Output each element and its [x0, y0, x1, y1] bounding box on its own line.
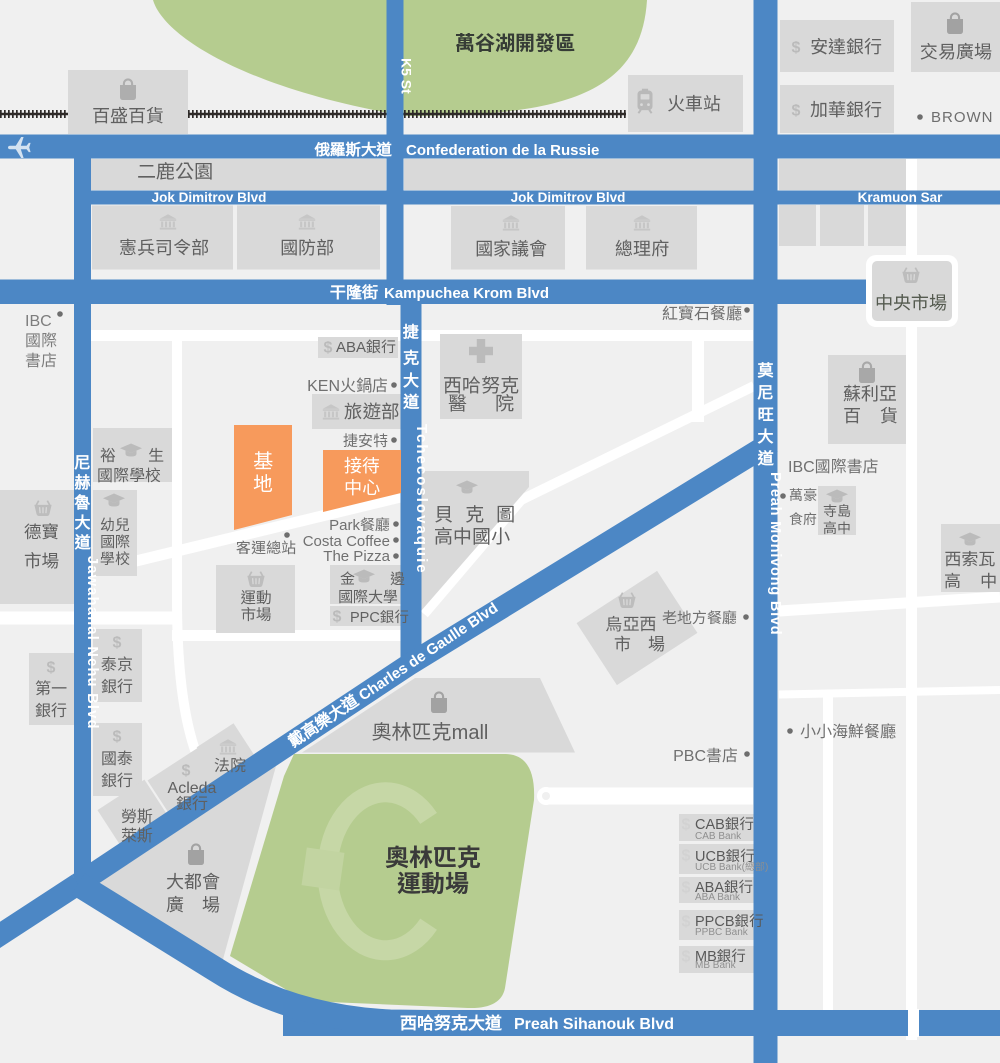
svg-text:魯: 魯 [74, 493, 91, 512]
svg-text:銀行: 銀行 [35, 702, 67, 720]
svg-text:寺島: 寺島 [823, 503, 851, 519]
svg-text:大: 大 [403, 371, 419, 390]
svg-text:市場: 市場 [240, 606, 271, 624]
svg-text:老地方餐廳: 老地方餐廳 [662, 609, 737, 627]
svg-text:勞斯: 勞斯 [121, 808, 153, 826]
svg-text:Preah Monivong Blvd: Preah Monivong Blvd [767, 472, 783, 635]
svg-text:Confederation de la Russie: Confederation de la Russie [406, 142, 599, 159]
svg-text:加華銀行: 加華銀行 [810, 100, 882, 120]
svg-text:百: 百 [843, 406, 861, 426]
svg-text:莫: 莫 [756, 361, 773, 380]
svg-text:總理府: 總理府 [615, 239, 669, 259]
svg-text:俄羅斯大道: 俄羅斯大道 [313, 141, 392, 159]
svg-text:高中國小: 高中國小 [434, 526, 510, 548]
svg-text:紅寶石餐廳: 紅寶石餐廳 [662, 304, 742, 323]
svg-text:蘇利亞: 蘇利亞 [843, 384, 897, 404]
svg-text:旅遊部: 旅遊部 [344, 401, 400, 422]
svg-text:小小海鮮餐廳: 小小海鮮餐廳 [800, 723, 896, 741]
svg-text:克: 克 [402, 349, 419, 368]
svg-text:運動: 運動 [240, 590, 271, 607]
svg-text:萬谷湖開發區: 萬谷湖開發區 [455, 33, 575, 55]
svg-text:PPBC Bank: PPBC Bank [695, 927, 749, 938]
svg-text:接待: 接待 [344, 456, 380, 476]
svg-text:國際: 國際 [25, 332, 57, 350]
svg-text:道: 道 [757, 450, 774, 468]
svg-text:ABA銀行: ABA銀行 [336, 339, 396, 356]
svg-text:尼: 尼 [756, 384, 773, 402]
svg-text:安達銀行: 安達銀行 [810, 37, 882, 57]
svg-text:烏亞西: 烏亞西 [606, 615, 657, 634]
svg-text:泰京: 泰京 [101, 655, 133, 674]
svg-text:Preah Sihanouk Blvd: Preah Sihanouk Blvd [514, 1016, 674, 1033]
svg-text:Jok Dimitrov Blvd: Jok Dimitrov Blvd [152, 190, 267, 205]
svg-text:國際學校: 國際學校 [97, 466, 161, 485]
svg-text:憲兵司令部: 憲兵司令部 [119, 238, 209, 258]
svg-text:市場: 市場 [24, 551, 59, 571]
svg-text:萬豪: 萬豪 [789, 487, 817, 503]
svg-text:基: 基 [253, 451, 273, 473]
svg-text:奧林匹克: 奧林匹克 [385, 845, 481, 872]
svg-text:西哈努克大道: 西哈努克大道 [400, 1014, 503, 1033]
svg-text:邊: 邊 [390, 571, 405, 588]
svg-text:書店: 書店 [25, 352, 57, 370]
svg-text:高中: 高中 [823, 520, 851, 536]
svg-text:廣: 廣 [166, 895, 184, 915]
svg-text:法院: 法院 [214, 757, 246, 775]
svg-text:銀行: 銀行 [101, 772, 133, 790]
svg-text:ABA Bank: ABA Bank [695, 892, 741, 903]
svg-text:MB Bank: MB Bank [695, 960, 737, 971]
svg-text:貨: 貨 [880, 406, 898, 426]
svg-text:Acleda: Acleda [168, 780, 217, 797]
svg-text:德寶: 德寶 [24, 522, 59, 542]
svg-text:IBC: IBC [25, 313, 52, 330]
svg-text:國泰: 國泰 [101, 749, 133, 768]
svg-text:幼兒: 幼兒 [100, 517, 130, 534]
svg-text:西索瓦: 西索瓦 [945, 550, 996, 569]
svg-text:IBC國際書店: IBC國際書店 [788, 458, 879, 476]
svg-text:國際: 國際 [100, 534, 130, 551]
svg-text:場: 場 [648, 635, 665, 654]
svg-text:第一: 第一 [35, 680, 67, 698]
svg-text:運動場: 運動場 [397, 871, 469, 898]
svg-text:Jok Dimitrov Blvd: Jok Dimitrov Blvd [511, 190, 626, 205]
svg-text:食府: 食府 [789, 511, 817, 527]
svg-text:百盛百貨: 百盛百貨 [92, 106, 164, 126]
svg-text:院: 院 [495, 394, 514, 415]
svg-text:中心: 中心 [344, 478, 380, 498]
svg-text:中央市場: 中央市場 [875, 293, 947, 313]
svg-text:二鹿公園: 二鹿公園 [137, 162, 213, 183]
svg-text:捷: 捷 [403, 323, 419, 342]
svg-text:Kramuon Sar: Kramuon Sar [858, 190, 944, 205]
svg-text:尼: 尼 [73, 454, 90, 472]
svg-text:K5 St: K5 St [399, 58, 415, 94]
svg-text:地: 地 [253, 474, 273, 496]
svg-text:場: 場 [202, 895, 220, 915]
svg-text:道: 道 [403, 394, 420, 412]
svg-text:銀行: 銀行 [176, 795, 208, 813]
svg-text:貝克圖: 貝克圖 [434, 505, 527, 526]
svg-text:Tchecoslovaquie: Tchecoslovaquie [413, 424, 430, 575]
svg-text:干隆街: 干隆街 [330, 283, 378, 302]
svg-text:裕: 裕 [100, 447, 116, 465]
svg-text:學校: 學校 [100, 550, 130, 568]
svg-text:中: 中 [980, 572, 997, 591]
svg-text:KEN火鍋店: KEN火鍋店 [307, 377, 388, 395]
svg-text:CAB Bank: CAB Bank [695, 831, 742, 842]
svg-text:Jawahahal Nehu Blvd: Jawahahal Nehu Blvd [84, 556, 100, 730]
svg-text:大: 大 [757, 427, 773, 446]
svg-text:醫: 醫 [448, 394, 467, 415]
svg-text:高: 高 [944, 572, 961, 591]
svg-text:市: 市 [614, 635, 631, 654]
svg-text:PPC銀行: PPC銀行 [350, 609, 409, 626]
svg-text:金: 金 [340, 571, 355, 588]
svg-text:大都會: 大都會 [166, 872, 220, 892]
svg-text:The Pizza: The Pizza [323, 548, 390, 565]
svg-text:UCB Bank(總部): UCB Bank(總部) [695, 861, 768, 873]
svg-text:國家議會: 國家議會 [475, 239, 547, 259]
svg-text:奧林匹克mall: 奧林匹克mall [372, 721, 489, 744]
svg-text:客運總站: 客運總站 [236, 540, 296, 557]
svg-text:交易廣場: 交易廣場 [920, 42, 992, 62]
svg-text:BROWN: BROWN [931, 109, 994, 126]
svg-text:銀行: 銀行 [101, 678, 133, 696]
svg-text:生: 生 [148, 447, 164, 465]
svg-text:Kampuchea Krom Blvd: Kampuchea Krom Blvd [384, 285, 549, 302]
svg-text:捷安特: 捷安特 [343, 432, 388, 450]
svg-text:旺: 旺 [757, 407, 773, 424]
svg-text:赫: 赫 [74, 473, 90, 492]
svg-text:火車站: 火車站 [667, 94, 721, 114]
svg-text:道: 道 [74, 534, 91, 552]
svg-text:大: 大 [74, 513, 90, 532]
svg-text:萊斯: 萊斯 [121, 827, 153, 845]
svg-text:國防部: 國防部 [280, 238, 334, 258]
svg-text:國際大學: 國際大學 [338, 589, 398, 606]
svg-text:PBC書店: PBC書店 [673, 747, 738, 765]
svg-text:Park餐廳: Park餐廳 [329, 516, 390, 534]
